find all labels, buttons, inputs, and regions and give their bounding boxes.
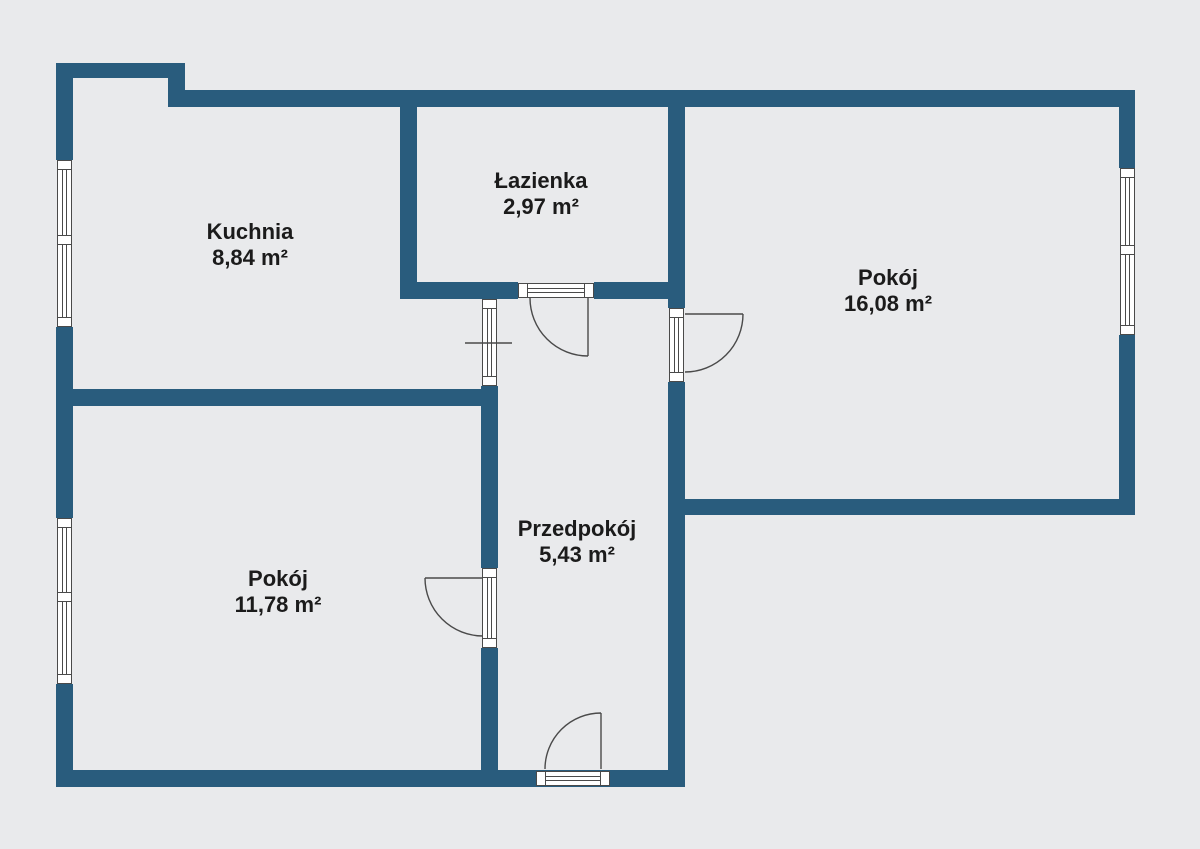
- wall-center-divider-lower: [481, 648, 498, 770]
- wall-center-divider-upper: [481, 386, 498, 568]
- room-label-pokoj-maly: Pokój 11,78 m²: [235, 566, 322, 618]
- room-area: 2,97 m²: [495, 194, 588, 220]
- window-kuchnia-pass-through-icon: [482, 299, 497, 386]
- room-area: 8,84 m²: [207, 245, 294, 271]
- room-name: Pokój: [844, 265, 932, 291]
- lazienka-door-swing-icon: [530, 298, 588, 356]
- entrance-door-swing-icon: [545, 713, 601, 769]
- wall-bathroom-left: [400, 107, 417, 282]
- wall-top-upper-step: [56, 63, 185, 78]
- wall-left-upper: [56, 63, 73, 160]
- pokoj-maly-door-swing-icon: [425, 578, 483, 636]
- doorway-pokoj-maly-icon: [482, 568, 497, 648]
- room-name: Pokój: [235, 566, 322, 592]
- pokoj-duzy-door-swing-icon: [685, 314, 743, 372]
- window-kuchnia-icon: [57, 160, 72, 327]
- room-name: Łazienka: [495, 168, 588, 194]
- room-name: Przedpokój: [518, 516, 637, 542]
- floorplan-canvas: Kuchnia 8,84 m² Łazienka 2,97 m² Pokój 1…: [0, 0, 1200, 849]
- room-label-przedpokoj: Przedpokój 5,43 m²: [518, 516, 637, 568]
- wall-east-divider-upper: [668, 107, 685, 308]
- room-label-pokoj-duzy: Pokój 16,08 m²: [844, 265, 932, 317]
- room-label-kuchnia: Kuchnia 8,84 m²: [207, 219, 294, 271]
- wall-kuchnia-pokoj-divider: [56, 389, 498, 406]
- doorway-pokoj-duzy-icon: [669, 308, 684, 382]
- wall-top-main: [168, 90, 1135, 107]
- room-label-lazienka: Łazienka 2,97 m²: [495, 168, 588, 220]
- window-pokoj-duzy-icon: [1120, 168, 1135, 335]
- room-area: 5,43 m²: [518, 542, 637, 568]
- wall-right-upper: [1119, 107, 1135, 168]
- room-name: Kuchnia: [207, 219, 294, 245]
- wall-bathroom-bottom-right: [594, 282, 668, 299]
- room-area: 16,08 m²: [844, 291, 932, 317]
- door-swing-overlay: [0, 0, 1200, 849]
- doorway-entrance-icon: [536, 771, 610, 786]
- window-pokoj-maly-icon: [57, 518, 72, 684]
- wall-east-divider-lower: [668, 382, 685, 770]
- wall-left-middle: [56, 327, 73, 518]
- wall-right-lower: [1119, 335, 1135, 515]
- wall-bathroom-bottom-left: [400, 282, 518, 299]
- room-area: 11,78 m²: [235, 592, 322, 618]
- doorway-lazienka-icon: [518, 283, 594, 298]
- wall-pokoj-duzy-bottom: [668, 499, 1135, 515]
